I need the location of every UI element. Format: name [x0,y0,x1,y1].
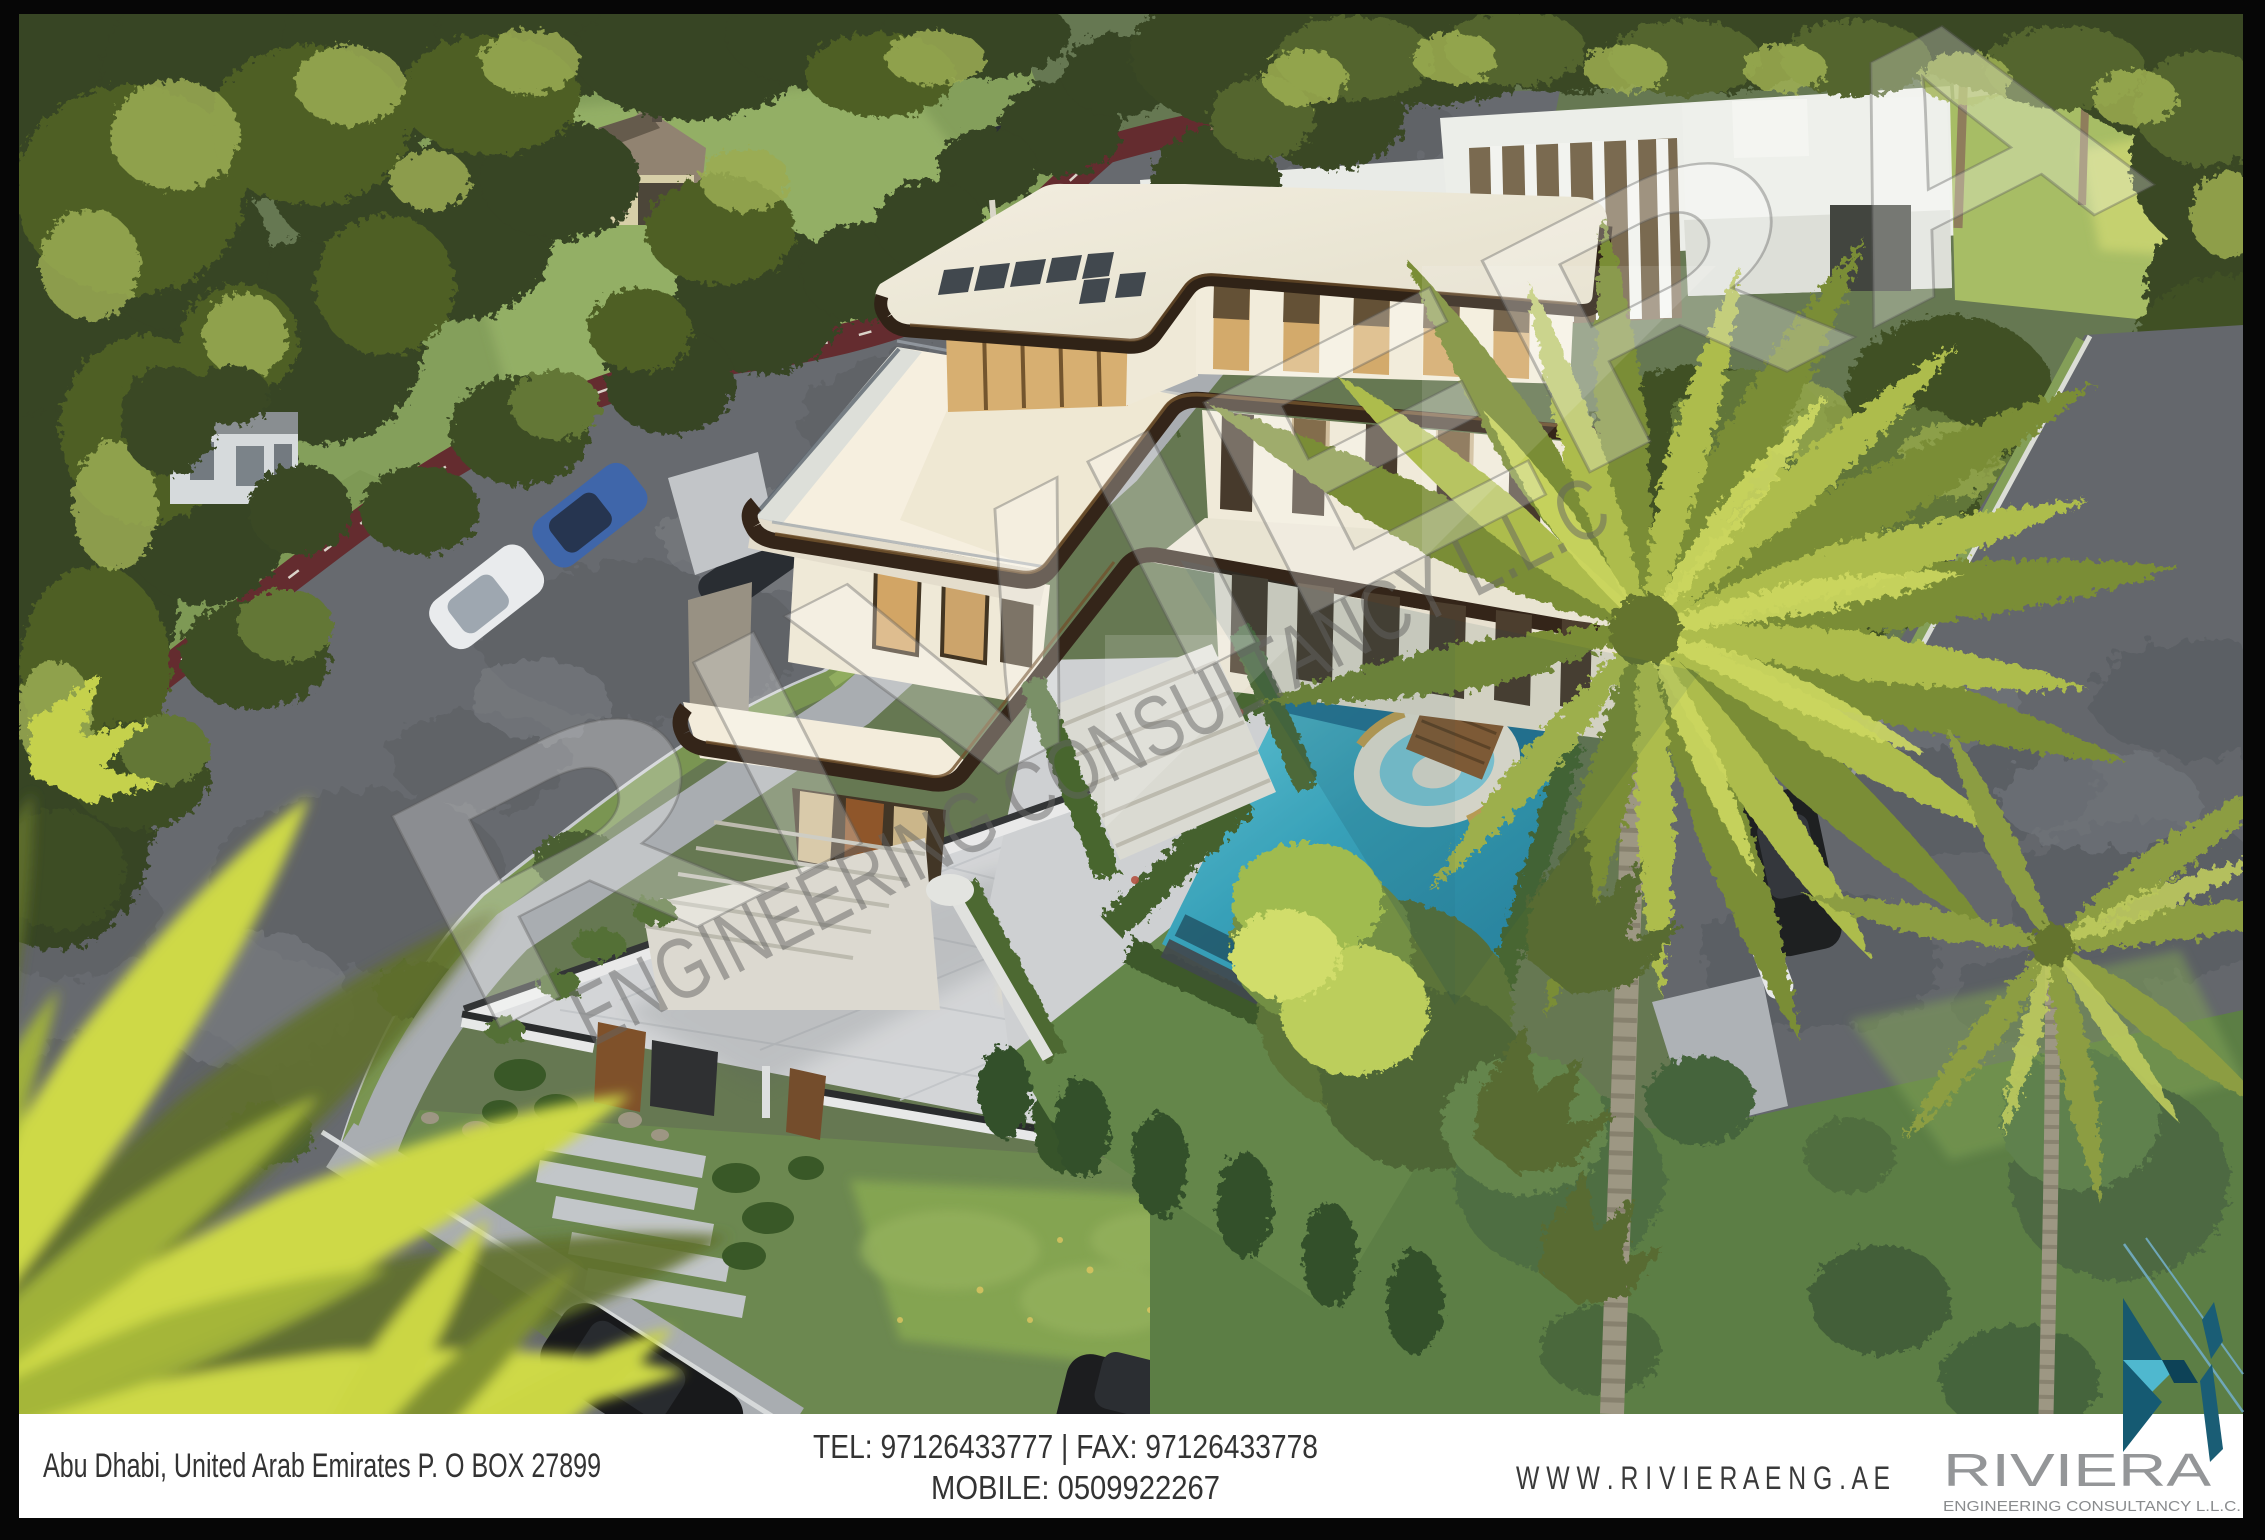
svg-text:MOBILE: 0509922267: MOBILE: 0509922267 [931,1469,1220,1506]
svg-text:TEL: 97126433777 | FAX: 9712: TEL: 97126433777 | FAX: 97126433778 [813,1428,1318,1465]
svg-text:W W W . R I V I E R A E N G .: W W W . R I V I E R A E N G . A E [1516,1460,1890,1496]
svg-text:Abu Dhabi, United Arab Emirate: Abu Dhabi, United Arab Emirates P. O BOX… [43,1447,601,1485]
svg-text:RIVIERA: RIVIERA [1943,1444,2211,1496]
svg-text:ENGINEERING CONSULTANCY L.L.C.: ENGINEERING CONSULTANCY L.L.C. [1943,1498,2241,1515]
